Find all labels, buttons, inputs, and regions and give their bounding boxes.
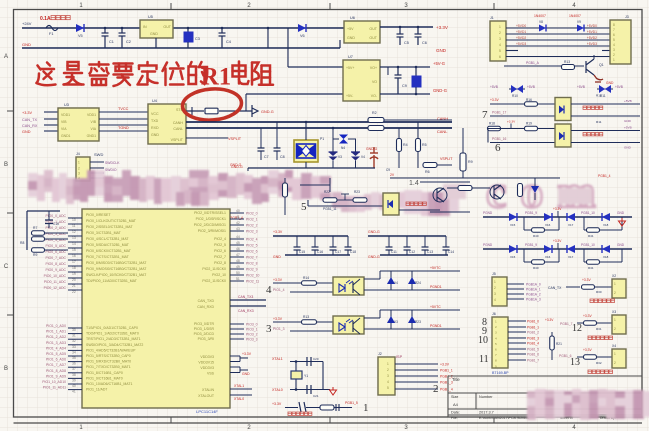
svg-text:PIO0_10_ADC: PIO0_10_ADC bbox=[44, 274, 67, 278]
svg-text:C14: C14 bbox=[448, 250, 454, 254]
svg-text:PGB1_5: PGB1_5 bbox=[527, 348, 539, 352]
svg-text:V18: V18 bbox=[603, 255, 609, 259]
svg-text:V6: V6 bbox=[300, 34, 305, 38]
svg-text:+3.3V: +3.3V bbox=[273, 278, 283, 282]
svg-text:R8: R8 bbox=[20, 241, 24, 245]
svg-text:PIO0_3/CT32B1_MAT: PIO0_3/CT32B1_MAT bbox=[86, 231, 122, 235]
svg-text:TVCC: TVCC bbox=[118, 107, 129, 111]
svg-text:F1: F1 bbox=[49, 32, 53, 36]
svg-text:1N4007: 1N4007 bbox=[569, 14, 581, 18]
svg-text:CAN_TX: CAN_TX bbox=[22, 118, 37, 122]
svg-text:CANL: CANL bbox=[173, 127, 183, 131]
svg-text:PIO1_7_AD7: PIO1_7_AD7 bbox=[46, 363, 66, 367]
svg-text:PIO0_6_ADC: PIO0_6_ADC bbox=[45, 250, 66, 254]
svg-text:2: 2 bbox=[613, 53, 615, 57]
svg-text:R41: R41 bbox=[588, 266, 594, 270]
svg-text:R11: R11 bbox=[596, 120, 602, 124]
svg-text:XTAL1: XTAL1 bbox=[234, 384, 244, 388]
svg-text:1N4007: 1N4007 bbox=[534, 14, 546, 18]
svg-text:C4: C4 bbox=[226, 40, 231, 44]
svg-text:1: 1 bbox=[614, 318, 616, 322]
svg-text:+3.3V: +3.3V bbox=[553, 239, 562, 243]
svg-text:10: 10 bbox=[478, 335, 488, 346]
svg-text:U4: U4 bbox=[152, 99, 157, 103]
svg-text:4: 4 bbox=[387, 380, 389, 384]
svg-text:VO-: VO- bbox=[371, 94, 378, 98]
svg-text:36: 36 bbox=[72, 362, 76, 366]
svg-text:GND-G: GND-G bbox=[433, 88, 447, 93]
svg-text:+5V+: +5V+ bbox=[346, 66, 354, 70]
svg-text:1.4: 1.4 bbox=[409, 180, 419, 187]
svg-text:R13: R13 bbox=[303, 315, 309, 319]
svg-text:VDD1: VDD1 bbox=[61, 113, 70, 117]
svg-text:PGB1_2: PGB1_2 bbox=[527, 331, 539, 335]
svg-text:PIO0_2/SSEL0/CT32B1_MAT: PIO0_2/SSEL0/CT32B1_MAT bbox=[86, 225, 133, 229]
svg-text:4: 4 bbox=[266, 284, 272, 296]
svg-text:+5VD1: +5VD1 bbox=[516, 30, 526, 34]
svg-text:3: 3 bbox=[387, 374, 389, 378]
svg-text:PIO0_9_ADC: PIO0_9_ADC bbox=[45, 268, 66, 272]
svg-text:PIO2_3/RI/MOSI1: PIO2_3/RI/MOSI1 bbox=[198, 229, 226, 233]
svg-text:PIO2_10: PIO2_10 bbox=[212, 273, 226, 277]
svg-text:TXD: TXD bbox=[151, 119, 159, 123]
svg-text:VO+: VO+ bbox=[370, 66, 377, 70]
svg-text:PGB1_6: PGB1_6 bbox=[559, 354, 572, 358]
svg-text:PGB1_3: PGB1_3 bbox=[527, 337, 539, 341]
svg-text:PIO3_3/RI: PIO3_3/RI bbox=[198, 337, 214, 341]
svg-text:C17: C17 bbox=[335, 250, 341, 254]
svg-text:CAN_TXD: CAN_TXD bbox=[198, 299, 215, 303]
svg-text:13: 13 bbox=[72, 236, 76, 240]
svg-text:PIO1_8_AD8: PIO1_8_AD8 bbox=[46, 369, 66, 373]
svg-text:C21: C21 bbox=[313, 394, 319, 398]
svg-text:10: 10 bbox=[72, 218, 76, 222]
svg-text:PIO2_0: PIO2_0 bbox=[246, 212, 258, 216]
svg-text:PIO2_3: PIO2_3 bbox=[246, 230, 258, 234]
svg-text:VCC: VCC bbox=[151, 112, 159, 116]
svg-text:R22: R22 bbox=[324, 190, 330, 194]
svg-text:R6: R6 bbox=[425, 170, 430, 174]
svg-text:+5VB: +5VB bbox=[490, 85, 498, 89]
svg-text:5: 5 bbox=[613, 38, 615, 42]
svg-text:+3.3V: +3.3V bbox=[242, 352, 252, 356]
svg-text:PIO2_5: PIO2_5 bbox=[214, 243, 226, 247]
svg-text:1: 1 bbox=[614, 352, 616, 356]
svg-text:2: 2 bbox=[78, 167, 80, 171]
svg-text:XTAL1: XTAL1 bbox=[272, 357, 283, 361]
svg-text:PIO1_8/CT16B1_CAP0: PIO1_8/CT16B1_CAP0 bbox=[86, 371, 123, 375]
svg-text:VIB: VIB bbox=[91, 120, 97, 124]
svg-text:+5VTC: +5VTC bbox=[430, 266, 441, 270]
svg-text:P1: P1 bbox=[320, 137, 324, 141]
svg-text:R14: R14 bbox=[303, 276, 309, 280]
svg-text:Date:: Date: bbox=[451, 411, 460, 415]
svg-text:43: 43 bbox=[236, 227, 240, 231]
svg-text:R24: R24 bbox=[415, 281, 421, 285]
svg-text:GND1: GND1 bbox=[87, 134, 97, 138]
svg-text:R40: R40 bbox=[533, 234, 539, 238]
svg-text:+5VB: +5VB bbox=[615, 85, 623, 89]
svg-text:SWCLK/PIO0_10/SCK0/CT32B1_MAT: SWCLK/PIO0_10/SCK0/CT32B1_MAT bbox=[86, 273, 147, 277]
svg-text:SWDCLK: SWDCLK bbox=[105, 161, 120, 165]
svg-text:C18: C18 bbox=[350, 250, 356, 254]
svg-text:J6: J6 bbox=[492, 312, 496, 316]
svg-text:5: 5 bbox=[301, 201, 307, 213]
svg-text:R23: R23 bbox=[354, 190, 360, 194]
svg-text:R16: R16 bbox=[526, 98, 532, 102]
svg-text:11: 11 bbox=[479, 354, 489, 365]
svg-text:C9: C9 bbox=[386, 168, 390, 172]
svg-text:+3.3V: +3.3V bbox=[583, 314, 593, 318]
svg-text:3: 3 bbox=[613, 48, 615, 52]
svg-text:R7: R7 bbox=[33, 226, 37, 230]
svg-text:7: 7 bbox=[495, 353, 497, 357]
svg-text:VO: VO bbox=[372, 80, 377, 84]
svg-text:19: 19 bbox=[72, 272, 76, 276]
svg-text:C2: C2 bbox=[126, 40, 131, 44]
svg-text:V15: V15 bbox=[510, 223, 516, 227]
svg-text:+5VD2: +5VD2 bbox=[516, 36, 526, 40]
svg-text:V17: V17 bbox=[568, 223, 574, 227]
svg-text:U7: U7 bbox=[348, 55, 353, 59]
svg-text:V3: V3 bbox=[394, 320, 398, 324]
svg-text:SWDIO/PIO1_3/AD4/CT32B1_MAT2: SWDIO/PIO1_3/AD4/CT32B1_MAT2 bbox=[86, 343, 143, 347]
svg-text:32: 32 bbox=[72, 339, 76, 343]
svg-text:XTALOUT: XTALOUT bbox=[198, 394, 215, 398]
svg-text:SWDIO: SWDIO bbox=[105, 168, 117, 172]
svg-text:4: 4 bbox=[495, 336, 497, 340]
svg-text:PIO2_7: PIO2_7 bbox=[246, 256, 258, 260]
svg-text:34: 34 bbox=[72, 350, 76, 354]
svg-text:VDD3V15: VDD3V15 bbox=[198, 361, 214, 365]
svg-text:PGB1A_3: PGB1A_3 bbox=[526, 298, 541, 302]
svg-text:PIO2_2/DCD/MISO1: PIO2_2/DCD/MISO1 bbox=[194, 223, 226, 227]
svg-text:GND: GND bbox=[347, 36, 355, 40]
svg-text:PIO0_7_ADC: PIO0_7_ADC bbox=[45, 256, 66, 260]
svg-text:GND1: GND1 bbox=[61, 134, 71, 138]
svg-text:2: 2 bbox=[387, 368, 389, 372]
svg-text:PIO2_9: PIO2_9 bbox=[246, 268, 258, 272]
svg-text:+5VTC: +5VTC bbox=[430, 305, 441, 309]
svg-text:GND: GND bbox=[617, 211, 625, 215]
svg-text:GND: GND bbox=[273, 255, 281, 259]
svg-text:+3.3V: +3.3V bbox=[583, 348, 593, 352]
svg-text:21: 21 bbox=[72, 284, 76, 288]
svg-text:GND: GND bbox=[242, 372, 250, 376]
svg-text:5: 5 bbox=[495, 342, 497, 346]
svg-text:GND-G: GND-G bbox=[366, 147, 378, 151]
svg-text:R1: R1 bbox=[201, 64, 232, 91]
svg-text:PIO3_2/DCD: PIO3_2/DCD bbox=[194, 332, 215, 336]
svg-text:0.1A: 0.1A bbox=[40, 16, 51, 22]
svg-text:GND-G: GND-G bbox=[368, 230, 380, 234]
svg-text:OUT: OUT bbox=[163, 25, 171, 29]
svg-text:R40: R40 bbox=[533, 266, 539, 270]
svg-text:PIO1_4: PIO1_4 bbox=[273, 288, 285, 292]
svg-text:+3.3V: +3.3V bbox=[22, 111, 32, 115]
svg-text:GND: GND bbox=[617, 243, 625, 247]
svg-text:PIO1_6/RXD/CT32B0_MAT0: PIO1_6/RXD/CT32B0_MAT0 bbox=[86, 360, 131, 364]
svg-text:5: 5 bbox=[499, 49, 501, 53]
svg-text:TGND: TGND bbox=[118, 126, 129, 130]
svg-text:U6: U6 bbox=[350, 16, 355, 20]
svg-text:GND: GND bbox=[151, 133, 159, 137]
svg-text:PIO1_11_AD11: PIO1_11_AD11 bbox=[43, 386, 66, 390]
svg-text:PGB1A_1: PGB1A_1 bbox=[526, 288, 541, 292]
svg-text:+5VD1: +5VD1 bbox=[587, 30, 597, 34]
svg-text:+5V-: +5V- bbox=[346, 94, 354, 98]
svg-text:V18: V18 bbox=[603, 223, 609, 227]
svg-text:12: 12 bbox=[72, 230, 76, 234]
svg-text:VSPLIT: VSPLIT bbox=[228, 137, 242, 141]
svg-text:VIB: VIB bbox=[61, 120, 67, 124]
svg-text:E:\work\CAN2017\PCB.Schdoc: E:\work\CAN2017\PCB.Schdoc bbox=[479, 416, 529, 420]
svg-text:PGB1_3: PGB1_3 bbox=[440, 381, 453, 385]
svg-text:XTALIN: XTALIN bbox=[202, 388, 214, 392]
svg-text:16: 16 bbox=[72, 254, 76, 258]
svg-text:PGND: PGND bbox=[483, 211, 493, 215]
svg-text:PIO0_11_ADC: PIO0_11_ADC bbox=[44, 280, 67, 284]
svg-text:R11: R11 bbox=[596, 94, 602, 98]
svg-text:PGB1_1: PGB1_1 bbox=[440, 369, 453, 373]
svg-text:TRST/PIO1_2/AD3/CT32B1_MAT1: TRST/PIO1_2/AD3/CT32B1_MAT1 bbox=[86, 337, 141, 341]
svg-text:46: 46 bbox=[236, 247, 240, 251]
svg-text:+3.3V: +3.3V bbox=[272, 402, 282, 406]
svg-text:PGB1_11: PGB1_11 bbox=[323, 207, 337, 211]
svg-text:PIO2_4: PIO2_4 bbox=[214, 237, 226, 241]
svg-text:40: 40 bbox=[236, 209, 240, 213]
svg-text:R21: R21 bbox=[556, 342, 562, 346]
svg-text:PGND1: PGND1 bbox=[430, 324, 442, 328]
svg-text:+5VB: +5VB bbox=[624, 99, 632, 103]
svg-text:PIO2_8: PIO2_8 bbox=[214, 261, 226, 265]
svg-text:13: 13 bbox=[570, 357, 580, 368]
svg-text:PIO0_5/SDA/CT32B1_MAT: PIO0_5/SDA/CT32B1_MAT bbox=[86, 243, 130, 247]
svg-text:U5: U5 bbox=[148, 15, 153, 19]
svg-text:3: 3 bbox=[494, 292, 496, 296]
svg-text:CANL: CANL bbox=[437, 129, 448, 134]
svg-text:PIO3_2: PIO3_2 bbox=[246, 333, 258, 337]
svg-text:R10: R10 bbox=[512, 94, 518, 98]
svg-text:20: 20 bbox=[72, 278, 76, 282]
svg-text:+3.3V: +3.3V bbox=[582, 278, 592, 282]
svg-text:J1: J1 bbox=[490, 16, 494, 20]
svg-text:V5: V5 bbox=[78, 34, 83, 38]
svg-text:C3: C3 bbox=[195, 37, 200, 41]
svg-text:J5: J5 bbox=[492, 272, 496, 276]
svg-text:BT169-BP: BT169-BP bbox=[492, 371, 509, 375]
svg-text:3: 3 bbox=[499, 37, 501, 41]
svg-text:Size: Size bbox=[451, 395, 458, 399]
svg-text:J3: J3 bbox=[625, 15, 629, 19]
svg-text:PGND: PGND bbox=[483, 243, 493, 247]
svg-text:R4: R4 bbox=[403, 143, 408, 147]
svg-text:2: 2 bbox=[494, 286, 496, 290]
svg-text:PIO3_1/DSR: PIO3_1/DSR bbox=[194, 327, 215, 331]
svg-text:33: 33 bbox=[72, 345, 76, 349]
svg-text:File:: File: bbox=[451, 416, 458, 420]
svg-text:A4: A4 bbox=[453, 402, 459, 407]
svg-text:PIO1_7/TXD/CT32B0_MAT1: PIO1_7/TXD/CT32B0_MAT1 bbox=[86, 365, 131, 369]
svg-text:R31: R31 bbox=[596, 327, 602, 331]
svg-text:PIO1_11/AD7: PIO1_11/AD7 bbox=[86, 388, 107, 392]
svg-text:PGB1A_0: PGB1A_0 bbox=[526, 283, 541, 287]
svg-text:V4: V4 bbox=[361, 155, 365, 159]
svg-text:C13: C13 bbox=[427, 250, 433, 254]
svg-text:PIO2_11: PIO2_11 bbox=[246, 280, 259, 284]
svg-text:PIO2_0/DTR/SSEL1: PIO2_0/DTR/SSEL1 bbox=[194, 211, 226, 215]
svg-text:30: 30 bbox=[72, 328, 76, 332]
svg-text:+5VD3: +5VD3 bbox=[516, 42, 526, 46]
svg-text:R5: R5 bbox=[422, 143, 427, 147]
svg-text:GND: GND bbox=[22, 130, 31, 134]
svg-text:V3: V3 bbox=[338, 155, 342, 159]
svg-text:2V: 2V bbox=[390, 173, 395, 177]
svg-text:C8: C8 bbox=[280, 155, 285, 159]
svg-text:TDO/PIO1_1/AD2/CT32B1_MAT0: TDO/PIO1_1/AD2/CT32B1_MAT0 bbox=[86, 332, 139, 336]
svg-text:6: 6 bbox=[499, 55, 501, 59]
svg-text:GND-G: GND-G bbox=[368, 255, 380, 259]
svg-text:PIO1_0_AD0: PIO1_0_AD0 bbox=[46, 324, 66, 328]
svg-text:51: 51 bbox=[236, 277, 240, 281]
svg-text:PGB1_9: PGB1_9 bbox=[525, 211, 537, 215]
svg-text:V15: V15 bbox=[510, 255, 516, 259]
svg-text:R18: R18 bbox=[489, 122, 495, 126]
svg-text:PGB1_10: PGB1_10 bbox=[581, 211, 595, 215]
svg-text:1: 1 bbox=[495, 320, 497, 324]
svg-text:V9: V9 bbox=[577, 20, 581, 24]
svg-text:IN: IN bbox=[143, 25, 147, 29]
svg-text:LPC11C14F: LPC11C14F bbox=[196, 409, 218, 414]
svg-text:PIO2_8: PIO2_8 bbox=[246, 262, 258, 266]
svg-text:PIO0_12_ADC: PIO0_12_ADC bbox=[44, 286, 67, 290]
svg-text:GND: GND bbox=[436, 48, 447, 53]
svg-text:+3.3V: +3.3V bbox=[507, 120, 516, 124]
svg-text:35: 35 bbox=[72, 356, 76, 360]
svg-text:GND: GND bbox=[624, 146, 632, 150]
svg-text:CAN_RXD: CAN_RXD bbox=[197, 305, 214, 309]
svg-text:PIO2_5: PIO2_5 bbox=[246, 244, 258, 248]
svg-text:7: 7 bbox=[482, 109, 488, 121]
svg-text:PGB1_4: PGB1_4 bbox=[598, 174, 611, 178]
svg-text:TDI/PIO0_11/AD0/CT32B1_MAT: TDI/PIO0_11/AD0/CT32B1_MAT bbox=[86, 279, 138, 283]
svg-text:PIO2_6: PIO2_6 bbox=[214, 249, 226, 253]
svg-text:GND: GND bbox=[624, 119, 632, 123]
svg-text:+3.3V: +3.3V bbox=[273, 317, 283, 321]
svg-text:+5VB: +5VB bbox=[527, 85, 535, 89]
svg-text:PGB1_9: PGB1_9 bbox=[525, 243, 537, 247]
svg-text:Q1: Q1 bbox=[599, 63, 604, 67]
svg-text:50: 50 bbox=[236, 271, 240, 275]
svg-text:Y1: Y1 bbox=[304, 374, 308, 378]
svg-text:38: 38 bbox=[72, 373, 76, 377]
svg-text:44: 44 bbox=[236, 235, 240, 239]
svg-text:41: 41 bbox=[72, 390, 76, 394]
svg-text:OUT: OUT bbox=[369, 27, 377, 31]
svg-text:PIO1_4_AD4: PIO1_4_AD4 bbox=[46, 346, 66, 350]
svg-text:PIO0_9/MOSI0/CT16B0/CT32B1_MAT: PIO0_9/MOSI0/CT16B0/CT32B1_MAT bbox=[86, 267, 147, 271]
svg-text:CAN_TX: CAN_TX bbox=[548, 286, 562, 290]
svg-text:R30: R30 bbox=[596, 290, 602, 294]
svg-text:VSPLIT: VSPLIT bbox=[171, 138, 184, 142]
svg-text:R23: R23 bbox=[415, 320, 421, 324]
svg-text:C7: C7 bbox=[264, 155, 269, 159]
svg-text:PIO1_3: PIO1_3 bbox=[273, 327, 285, 331]
svg-text:J2: J2 bbox=[378, 352, 382, 356]
svg-text:N4: N4 bbox=[341, 146, 345, 150]
svg-text:PIO1_10_AD10: PIO1_10_AD10 bbox=[42, 380, 66, 384]
svg-text:3: 3 bbox=[495, 331, 497, 335]
svg-text:+5VD2: +5VD2 bbox=[587, 36, 597, 40]
svg-text:1: 1 bbox=[78, 161, 80, 165]
svg-text:A: A bbox=[4, 54, 8, 60]
svg-text:PIO0_7/CTS/CT32B1_MAT: PIO0_7/CTS/CT32B1_MAT bbox=[86, 255, 130, 259]
svg-text:PIO3_0/DTR: PIO3_0/DTR bbox=[194, 322, 215, 326]
svg-text:+3.3V: +3.3V bbox=[440, 363, 450, 367]
svg-text:+3.3V: +3.3V bbox=[553, 207, 562, 211]
svg-text:CAN_TX3: CAN_TX3 bbox=[238, 295, 253, 299]
svg-text:41: 41 bbox=[236, 215, 240, 219]
svg-text:PGB1_7: PGB1_7 bbox=[527, 359, 539, 363]
svg-text:+5V-G: +5V-G bbox=[433, 61, 445, 66]
svg-text:PGB1_4: PGB1_4 bbox=[527, 342, 539, 346]
svg-text:R19: R19 bbox=[526, 122, 532, 126]
svg-text:8: 8 bbox=[495, 359, 497, 363]
svg-text:PIO2_10: PIO2_10 bbox=[246, 274, 259, 278]
svg-text:OUT: OUT bbox=[369, 36, 377, 40]
svg-text:2017.3.7: 2017.3.7 bbox=[479, 411, 494, 415]
svg-text:5: 5 bbox=[387, 386, 389, 390]
svg-text:PGB1_10: PGB1_10 bbox=[581, 243, 595, 247]
svg-text:R32: R32 bbox=[596, 361, 602, 365]
svg-text:U3: U3 bbox=[64, 103, 69, 107]
svg-text:PGB1_4: PGB1_4 bbox=[440, 388, 453, 392]
svg-text:B: B bbox=[4, 366, 8, 372]
svg-text:+5VD3: +5VD3 bbox=[587, 42, 597, 46]
svg-text:VIA: VIA bbox=[61, 127, 67, 131]
svg-text:VDD3V3: VDD3V3 bbox=[200, 366, 214, 370]
svg-text:PGB1_6: PGB1_6 bbox=[527, 353, 539, 357]
svg-text:T1S/PIO1_0/AD1/CT32B1_CAP0: T1S/PIO1_0/AD1/CT32B1_CAP0 bbox=[86, 326, 138, 330]
svg-text:12: 12 bbox=[572, 323, 582, 334]
svg-text:+5VB: +5VB bbox=[624, 126, 632, 130]
svg-text:PIO1_3_AD3: PIO1_3_AD3 bbox=[46, 341, 66, 345]
svg-text:SWD: SWD bbox=[94, 152, 103, 157]
svg-text:C9: C9 bbox=[402, 84, 407, 88]
svg-text:2: 2 bbox=[614, 291, 616, 295]
svg-text:PIO3_1: PIO3_1 bbox=[246, 328, 258, 332]
svg-text:42: 42 bbox=[236, 221, 240, 225]
svg-text:18: 18 bbox=[72, 266, 76, 270]
svg-text:GND-G: GND-G bbox=[231, 165, 243, 169]
svg-text:PIO1_2_AD2: PIO1_2_AD2 bbox=[46, 335, 66, 339]
svg-text:PIO1_6_AD6: PIO1_6_AD6 bbox=[46, 358, 66, 362]
svg-text:PIO1_9_AD9: PIO1_9_AD9 bbox=[46, 374, 66, 378]
svg-text:PIO1_4/AD5/CT32B1/WAKEUP: PIO1_4/AD5/CT32B1/WAKEUP bbox=[86, 348, 136, 352]
svg-text:PIO2_2: PIO2_2 bbox=[246, 224, 258, 228]
svg-text:GND: GND bbox=[22, 42, 31, 47]
svg-text:22: 22 bbox=[72, 290, 76, 294]
svg-text:PIO0_0/RESET: PIO0_0/RESET bbox=[86, 213, 111, 217]
svg-text:48: 48 bbox=[236, 259, 240, 263]
svg-text:17: 17 bbox=[72, 260, 76, 264]
svg-text:GND: GND bbox=[606, 81, 614, 85]
svg-text:4: 4 bbox=[499, 43, 501, 47]
svg-text:R9: R9 bbox=[33, 253, 37, 257]
svg-text:X3: X3 bbox=[612, 310, 616, 314]
svg-text:+3.3V: +3.3V bbox=[273, 230, 283, 234]
svg-text:PIO0_8/MISO0/CT16B0/CT32B1_MAT: PIO0_8/MISO0/CT16B0/CT32B1_MAT bbox=[86, 261, 147, 265]
